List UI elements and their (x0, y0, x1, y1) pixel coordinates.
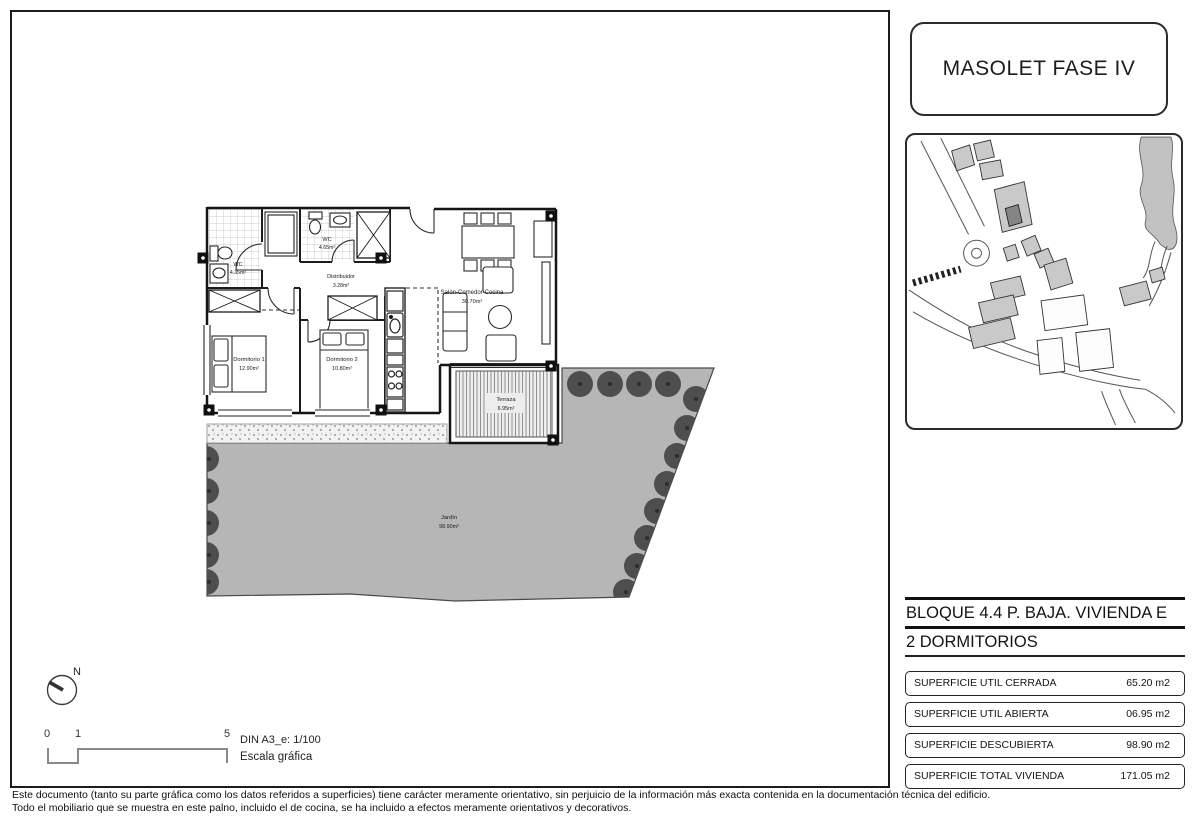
scale-tick-1: 1 (75, 728, 81, 740)
surface-row: SUPERFICIE UTIL ABIERTA 06.95 m2 (905, 702, 1185, 727)
site-map-box (905, 133, 1183, 430)
svg-text:3.28m²: 3.28m² (333, 283, 349, 289)
scale-bar: 0 1 5 DIN A3_e: 1/100 Escala gráfica (44, 728, 321, 763)
coffee-table (489, 306, 512, 329)
surface-table: SUPERFICIE UTIL CERRADA 65.20 m2 SUPERFI… (905, 671, 1185, 789)
svg-text:98.90m²: 98.90m² (439, 524, 459, 530)
svg-text:WC: WC (233, 262, 242, 268)
map-roundabout (964, 240, 990, 266)
wardrobe-dorm2 (328, 296, 377, 320)
wc2-sink (330, 213, 350, 227)
unit-info-panel: BLOQUE 4.4 P. BAJA. VIVIENDA E 2 DORMITO… (905, 597, 1185, 789)
site-map (907, 135, 1181, 428)
wardrobe-dorm1 (209, 290, 260, 312)
surface-label: SUPERFICIE UTIL ABIERTA (914, 708, 1049, 720)
dining-table-chairs (462, 213, 514, 271)
block-title: BLOQUE 4.4 P. BAJA. VIVIENDA E (905, 600, 1185, 626)
divider (905, 655, 1185, 657)
tv-unit (534, 221, 552, 257)
svg-text:4.65m²: 4.65m² (319, 245, 335, 251)
scale-tick-5: 5 (224, 728, 230, 740)
surface-value: 171.05 m2 (1120, 770, 1170, 782)
surface-value: 65.20 m2 (1126, 677, 1170, 689)
surface-label: SUPERFICIE UTIL CERRADA (914, 677, 1057, 689)
wc1-sink (210, 264, 228, 283)
svg-text:Jardín: Jardín (441, 515, 457, 521)
media-cabinet (542, 262, 550, 344)
scale-tick-0: 0 (44, 728, 50, 740)
surface-row: SUPERFICIE UTIL CERRADA 65.20 m2 (905, 671, 1185, 696)
north-arrow: N (48, 666, 82, 705)
wc2-toilet (309, 212, 322, 234)
svg-text:Salón-Comedor-Cocina: Salón-Comedor-Cocina (441, 290, 504, 296)
surface-value: 98.90 m2 (1126, 739, 1170, 751)
svg-text:12.90m²: 12.90m² (239, 366, 259, 372)
svg-text:Distribuidor: Distribuidor (327, 274, 355, 280)
svg-text:30.70m²: 30.70m² (462, 299, 483, 305)
project-title-box: MASOLET FASE IV (910, 22, 1168, 116)
svg-text:Dormitorio 2: Dormitorio 2 (326, 357, 358, 363)
scale-caption: Escala gráfica (240, 751, 313, 763)
svg-text:Terraza: Terraza (496, 397, 516, 403)
kitchen-strip (385, 288, 405, 412)
plan-sheet: { "title_box": { "title": "MASOLET FASE … (0, 0, 1200, 821)
svg-text:10.80m²: 10.80m² (332, 366, 352, 372)
shower-tray (265, 212, 297, 256)
map-terrain-blob (1140, 137, 1177, 249)
bed-dorm1 (212, 336, 266, 392)
kitchen-sink (387, 313, 403, 337)
room-label-terraza: Terraza 6.95m² (487, 393, 525, 413)
disclaimer-line-1: Este documento (tanto su parte gráfica c… (12, 789, 1194, 802)
surface-row: SUPERFICIE DESCUBIERTA 98.90 m2 (905, 733, 1185, 758)
disclaimer: Este documento (tanto su parte gráfica c… (12, 789, 1194, 814)
paved-path-strip (207, 424, 447, 443)
surface-value: 06.95 m2 (1126, 708, 1170, 720)
svg-text:WC: WC (322, 237, 331, 243)
map-roads (909, 138, 1175, 425)
scale-din-label: DIN A3_e: 1/100 (240, 734, 321, 746)
armchair-2 (486, 335, 516, 361)
floor-plan-drawing: WC 4.35m² WC 4.65m² Distribuidor 3.28m² … (0, 0, 890, 790)
north-label: N (73, 666, 81, 678)
project-title: MASOLET FASE IV (943, 57, 1136, 81)
map-crosswalk (913, 269, 961, 283)
wardrobe-hall (357, 212, 390, 258)
map-buildings-outline (1037, 295, 1113, 374)
surface-row: SUPERFICIE TOTAL VIVIENDA 171.05 m2 (905, 764, 1185, 789)
svg-text:6.95m²: 6.95m² (498, 406, 515, 412)
surface-label: SUPERFICIE TOTAL VIVIENDA (914, 770, 1064, 782)
type-title: 2 DORMITORIOS (905, 629, 1185, 655)
svg-text:4.35m²: 4.35m² (230, 270, 246, 276)
disclaimer-line-2: Todo el mobiliario que se muestra en est… (12, 802, 1194, 815)
svg-text:Dormitorio 1: Dormitorio 1 (233, 357, 265, 363)
kitchen-stove (387, 367, 403, 397)
surface-label: SUPERFICIE DESCUBIERTA (914, 739, 1054, 751)
